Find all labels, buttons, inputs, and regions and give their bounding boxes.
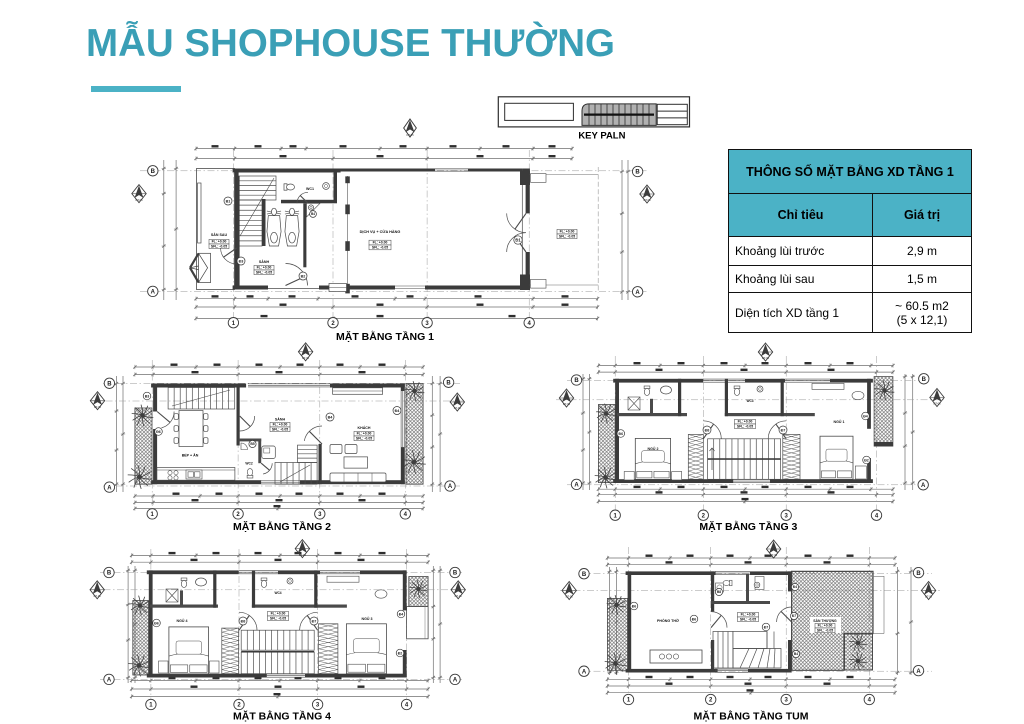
- svg-text:Ð6: Ð6: [154, 621, 159, 625]
- svg-text:A: A: [453, 678, 458, 684]
- svg-text:DT-05: DT-05: [762, 356, 770, 360]
- svg-text:FL: +0.00: FL: +0.00: [212, 240, 227, 244]
- svg-text:FL: +0.00: FL: +0.00: [818, 624, 833, 628]
- svg-text:Ð2: Ð2: [398, 651, 403, 655]
- svg-text:Ð7: Ð7: [764, 625, 769, 629]
- svg-text:MẶT BẰNG TẦNG 4: MẶT BẰNG TẦNG 4: [233, 710, 331, 723]
- svg-text:FL: +0.00: FL: +0.00: [273, 423, 288, 427]
- svg-text:SFL: -0.05: SFL: -0.05: [737, 425, 753, 429]
- svg-text:DT-05: DT-05: [94, 405, 102, 409]
- svg-text:Ð6: Ð6: [692, 617, 697, 621]
- svg-text:B: B: [107, 571, 112, 577]
- svg-text:Ð4: Ð4: [863, 414, 868, 418]
- svg-text:SFL: -0.05: SFL: -0.05: [270, 617, 286, 621]
- svg-text:B4: B4: [311, 212, 315, 216]
- svg-text:FL: +0.00: FL: +0.00: [738, 420, 753, 424]
- svg-text:BẾP + ĂN: BẾP + ĂN: [182, 453, 199, 458]
- svg-text:B1: B1: [226, 199, 231, 203]
- svg-text:B: B: [107, 381, 112, 387]
- svg-text:MẶT BẰNG TẦNG 3: MẶT BẰNG TẦNG 3: [699, 520, 797, 533]
- svg-text:A: A: [916, 669, 921, 675]
- svg-text:A: A: [107, 678, 112, 684]
- svg-text:DT-05: DT-05: [566, 595, 574, 599]
- svg-text:NGỦ 4: NGỦ 4: [177, 618, 188, 623]
- svg-text:B: B: [635, 170, 640, 176]
- svg-text:A: A: [107, 485, 112, 491]
- svg-text:Ð6: Ð6: [156, 430, 161, 434]
- svg-text:FL: +0.00: FL: +0.00: [560, 230, 575, 234]
- svg-text:FL: +0.00: FL: +0.00: [741, 613, 756, 617]
- svg-text:SẢNH: SẢNH: [259, 259, 270, 264]
- svg-text:DỊCH VỤ + CỬA HÀNG: DỊCH VỤ + CỬA HÀNG: [360, 229, 401, 234]
- svg-text:B: B: [922, 377, 927, 383]
- svg-text:SÂN THƯỢNG: SÂN THƯỢNG: [813, 618, 837, 623]
- svg-text:Ð6: Ð6: [618, 432, 623, 436]
- svg-text:Ð1: Ð1: [515, 237, 521, 242]
- svg-text:PHÒNG THỜ: PHÒNG THỜ: [657, 618, 680, 623]
- svg-text:Ð7: Ð7: [312, 619, 317, 623]
- svg-text:SFL: -0.05: SFL: -0.05: [372, 246, 388, 250]
- svg-text:A: A: [448, 484, 453, 490]
- svg-text:B: B: [446, 380, 451, 386]
- svg-text:SFL: -0.05: SFL: -0.05: [356, 437, 372, 441]
- svg-text:B2: B2: [301, 274, 306, 278]
- svg-text:B: B: [453, 571, 458, 577]
- svg-text:WC1: WC1: [306, 187, 314, 191]
- svg-text:B: B: [916, 571, 921, 577]
- svg-text:NGỦ 3: NGỦ 3: [362, 616, 373, 621]
- svg-text:B: B: [574, 378, 579, 384]
- svg-text:MẶT BẰNG TẦNG 2: MẶT BẰNG TẦNG 2: [233, 520, 331, 533]
- svg-text:Ð6: Ð6: [632, 604, 637, 608]
- svg-text:A: A: [574, 483, 579, 489]
- svg-text:DT-05: DT-05: [770, 553, 778, 557]
- svg-text:SFL: -0.05: SFL: -0.05: [817, 629, 833, 633]
- svg-text:FL: +0.00: FL: +0.00: [271, 612, 286, 616]
- svg-text:SFL: -0.05: SFL: -0.05: [740, 618, 756, 622]
- svg-text:DT-05: DT-05: [135, 198, 143, 202]
- svg-text:WC3: WC3: [746, 399, 753, 403]
- svg-text:DT-05: DT-05: [302, 356, 310, 360]
- svg-text:A: A: [635, 290, 640, 296]
- svg-text:MẶT BẰNG TẦNG 1: MẶT BẰNG TẦNG 1: [336, 330, 434, 343]
- svg-text:B5: B5: [250, 442, 254, 446]
- svg-text:FL: +0.00: FL: +0.00: [373, 241, 388, 245]
- svg-text:DT-05: DT-05: [455, 594, 463, 598]
- svg-text:DT-05: DT-05: [299, 553, 307, 557]
- svg-text:SFL: -0.05: SFL: -0.05: [256, 271, 272, 275]
- svg-text:Ð2: Ð2: [864, 458, 869, 462]
- svg-text:Ð4: Ð4: [793, 585, 797, 589]
- svg-text:Ð3: Ð3: [239, 259, 244, 263]
- svg-text:NGỦ 2: NGỦ 2: [648, 446, 659, 451]
- svg-text:FL: +0.00: FL: +0.00: [257, 266, 272, 270]
- svg-text:DT-05: DT-05: [454, 406, 462, 410]
- svg-text:Ð8: Ð8: [241, 619, 246, 623]
- svg-text:WC4: WC4: [274, 591, 281, 595]
- svg-text:KHÁCH: KHÁCH: [358, 425, 371, 430]
- svg-text:MẶT BẰNG TẦNG TUM: MẶT BẰNG TẦNG TUM: [694, 710, 809, 723]
- svg-text:B: B: [582, 572, 587, 578]
- svg-text:Ð7: Ð7: [781, 428, 786, 432]
- svg-text:SFL: -0.05: SFL: -0.05: [272, 428, 288, 432]
- svg-text:A: A: [582, 669, 587, 675]
- svg-text:SÂN SAU: SÂN SAU: [211, 232, 228, 237]
- svg-text:FL: +0.00: FL: +0.00: [357, 432, 372, 436]
- svg-text:SẢNH: SẢNH: [275, 417, 286, 422]
- svg-text:A: A: [151, 290, 156, 296]
- svg-text:DT-05: DT-05: [94, 594, 102, 598]
- svg-text:A: A: [921, 483, 926, 489]
- svg-text:WC2: WC2: [245, 462, 252, 466]
- svg-text:DT-05: DT-05: [925, 595, 933, 599]
- svg-text:Ð7: Ð7: [792, 614, 796, 618]
- svg-text:Ð8: Ð8: [705, 428, 710, 432]
- svg-text:B4: B4: [794, 652, 798, 656]
- svg-text:Ð4: Ð4: [399, 612, 404, 616]
- svg-text:SFL: -0.05: SFL: -0.05: [559, 235, 575, 239]
- svg-text:DT-05: DT-05: [643, 198, 651, 202]
- svg-text:B: B: [151, 169, 156, 175]
- svg-text:SFL: -0.05: SFL: -0.05: [211, 245, 227, 249]
- svg-text:DT-05: DT-05: [563, 402, 571, 406]
- svg-text:B3: B3: [145, 394, 150, 398]
- svg-text:DT-05: DT-05: [933, 402, 941, 406]
- svg-text:NGỦ 1: NGỦ 1: [834, 419, 845, 424]
- svg-text:B8: B8: [717, 590, 721, 594]
